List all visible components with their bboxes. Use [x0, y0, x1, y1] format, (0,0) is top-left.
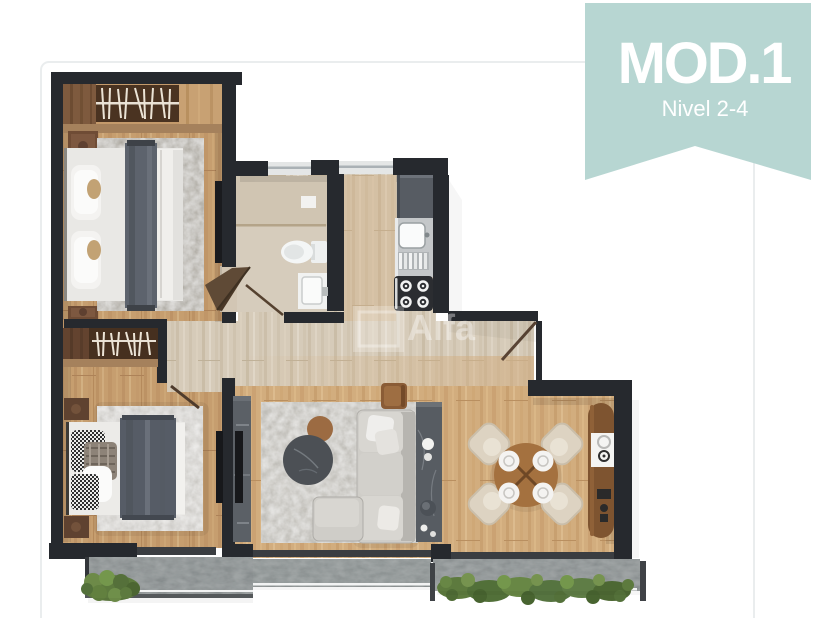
- svg-text:Alfa: Alfa: [407, 307, 476, 348]
- svg-text:MOD.1: MOD.1: [618, 31, 792, 96]
- svg-text:Nivel 2-4: Nivel 2-4: [662, 96, 749, 121]
